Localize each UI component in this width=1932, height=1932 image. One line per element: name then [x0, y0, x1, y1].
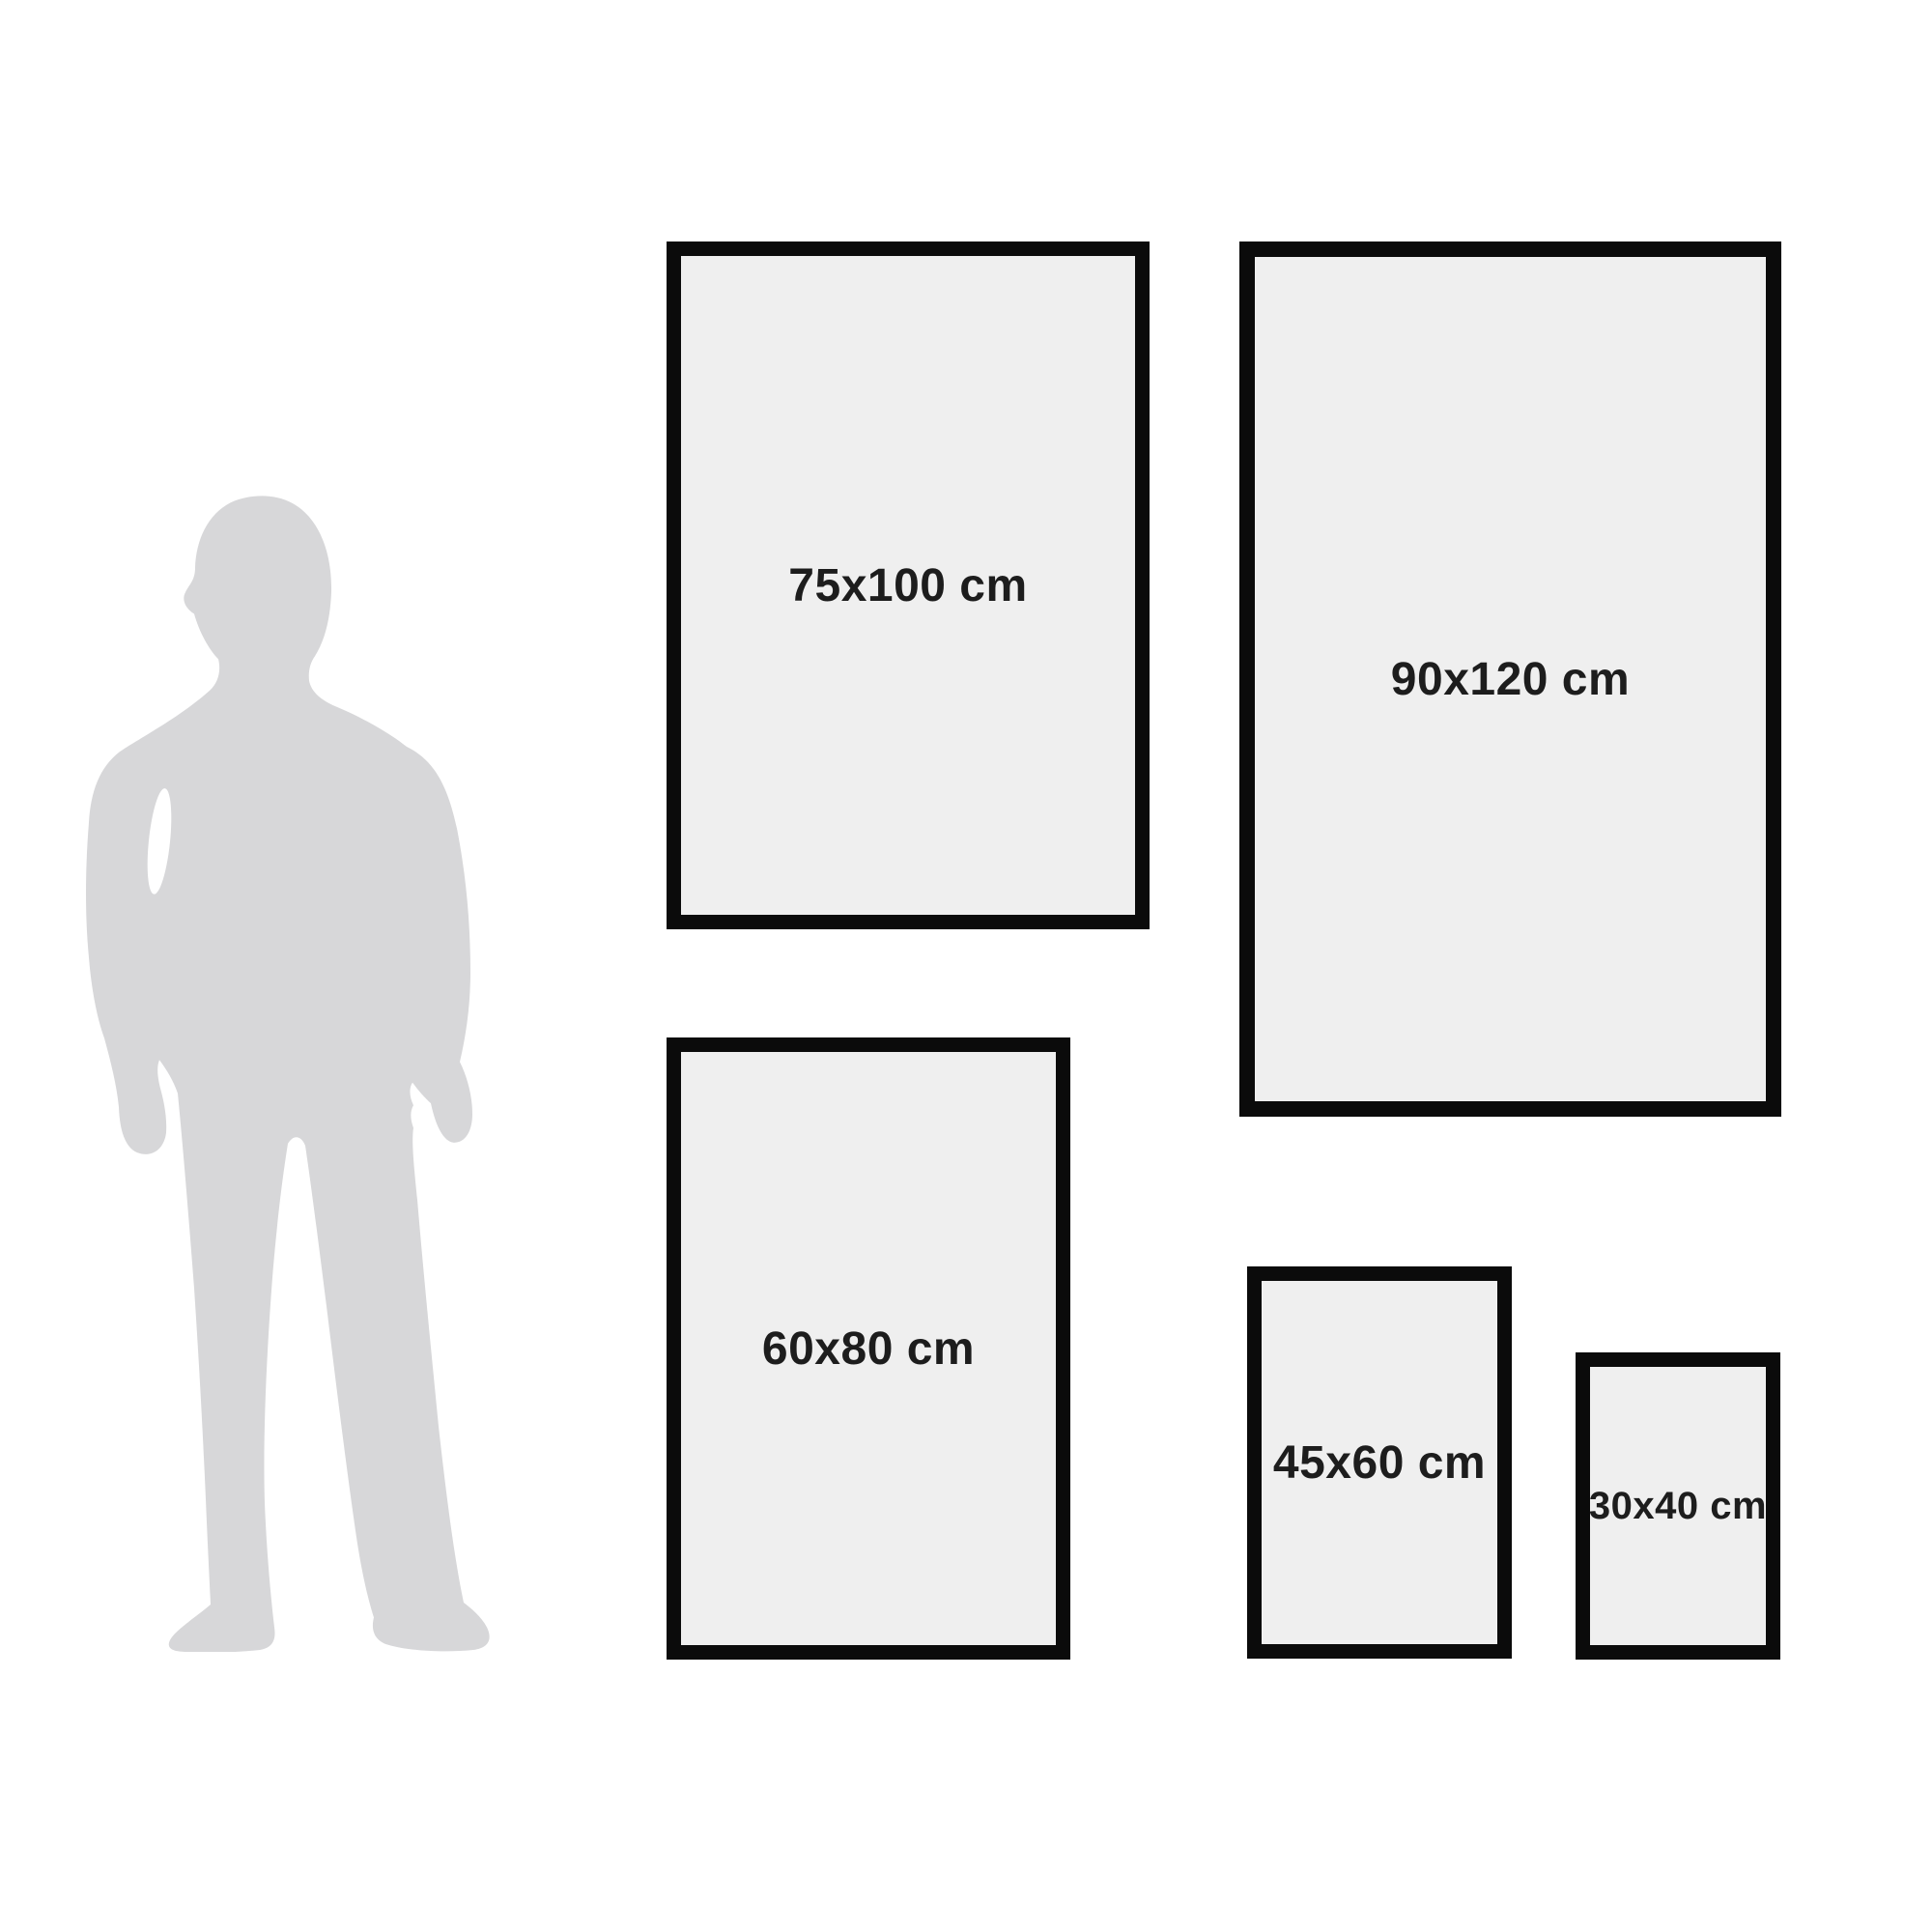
frame-60x80-label: 60x80 cm	[762, 1322, 975, 1376]
frame-90x120: 90x120 cm	[1239, 241, 1781, 1117]
frame-60x80: 60x80 cm	[667, 1037, 1070, 1660]
frame-75x100-label: 75x100 cm	[788, 559, 1027, 612]
frame-30x40-label: 30x40 cm	[1589, 1485, 1767, 1528]
frame-30x40: 30x40 cm	[1576, 1352, 1780, 1660]
man-silhouette-shape	[86, 496, 490, 1652]
frame-75x100: 75x100 cm	[667, 241, 1150, 929]
frame-45x60-label: 45x60 cm	[1273, 1436, 1486, 1490]
frame-45x60: 45x60 cm	[1247, 1266, 1512, 1659]
size-comparison-diagram: 75x100 cm 90x120 cm 60x80 cm 45x60 cm 30…	[0, 0, 1932, 1932]
frame-90x120-label: 90x120 cm	[1391, 653, 1630, 706]
man-silhouette-icon	[86, 495, 521, 1652]
